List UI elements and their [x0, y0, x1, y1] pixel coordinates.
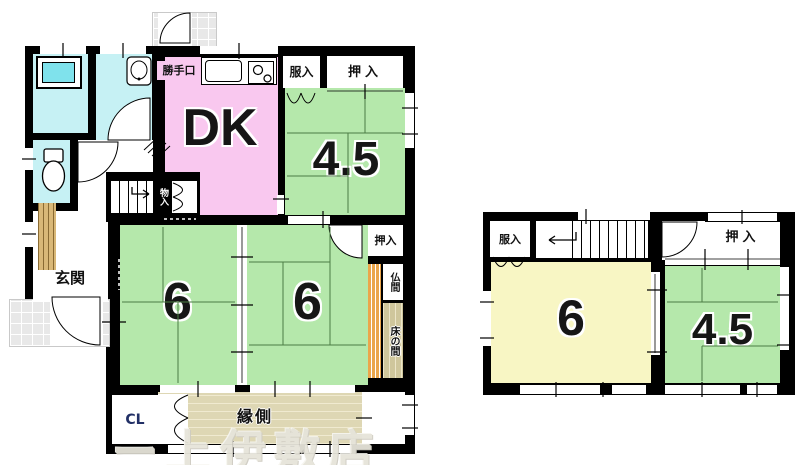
- toilet-west-window: [25, 148, 33, 170]
- r6-north-sliding: [288, 216, 330, 224]
- dk-45-sliding: [277, 195, 284, 214]
- back-door-opening: [158, 13, 192, 46]
- f2-room-divider-sliding: [651, 272, 660, 355]
- kitchen-stove: [248, 61, 274, 84]
- room-6-2f-label: 6: [491, 287, 651, 349]
- fusuma-partition: [237, 225, 247, 385]
- engawa-north-sliding-1: [160, 385, 235, 393]
- f2-west-window: [483, 291, 491, 346]
- tatami-4-5-label-1f: 4.5: [287, 130, 405, 188]
- butsuma-label: 仏間: [383, 264, 403, 300]
- oshiire-2f: 押入: [705, 222, 780, 253]
- monoire-label: 物入: [153, 177, 172, 217]
- fukuire-1f: 服入: [283, 56, 320, 88]
- tatami45-east-window: [405, 93, 414, 148]
- engawa-east-window: [405, 395, 414, 435]
- entry-door-vestibule: [50, 296, 103, 345]
- kitchen-sink: [205, 60, 242, 82]
- hallway-upper: [78, 140, 153, 172]
- f2-south-window-y2: [612, 385, 646, 394]
- oshiire-mid-1f: 押入: [368, 225, 403, 256]
- genkan-label: 玄関: [40, 266, 100, 290]
- f2-east-window: [780, 267, 789, 350]
- katteguchi-label: 勝手口: [157, 61, 201, 80]
- entry-west-window: [25, 222, 33, 247]
- stairs-2f-treads: [572, 221, 648, 258]
- f2-fusuma-band: [665, 253, 780, 265]
- f2-south-window-g2: [747, 385, 777, 394]
- fukuire-2f: 服入: [490, 221, 530, 257]
- entrance-wood-floor: [38, 203, 56, 270]
- bathtub-water: [42, 62, 75, 83]
- kitchen-window: [200, 46, 278, 54]
- floor-plan: 玄関 勝手口 DK 物入 服入 押入 4.5 6 6 押入 仏間 床の間 CL …: [0, 0, 800, 465]
- f2-south-window-y1: [520, 385, 600, 394]
- tokonoma-label: 床の間: [383, 305, 403, 377]
- toilet-room: [33, 140, 70, 203]
- washroom-window: [100, 46, 146, 54]
- f2-oshiire-top-window: [708, 213, 777, 221]
- stairs-1f: [110, 181, 153, 213]
- washroom: [96, 54, 152, 140]
- f2-south-window-g1: [665, 385, 740, 394]
- tatami-6-right-label: 6: [247, 272, 368, 332]
- room-45-2f-label: 4.5: [665, 300, 780, 360]
- f2-stairs-top-window: [578, 212, 650, 220]
- oshiire-top-1f: 押入: [327, 56, 403, 88]
- store-watermark: ー上伊敷店: [112, 416, 382, 465]
- engawa-north-sliding-2: [250, 385, 355, 393]
- stairs-bifold-door: [172, 181, 197, 213]
- tatami-6-left-label: 6: [118, 272, 237, 332]
- tokonoma-wood-strip: [368, 264, 381, 378]
- dk-label: DK: [165, 98, 275, 158]
- bath-window: [40, 46, 86, 54]
